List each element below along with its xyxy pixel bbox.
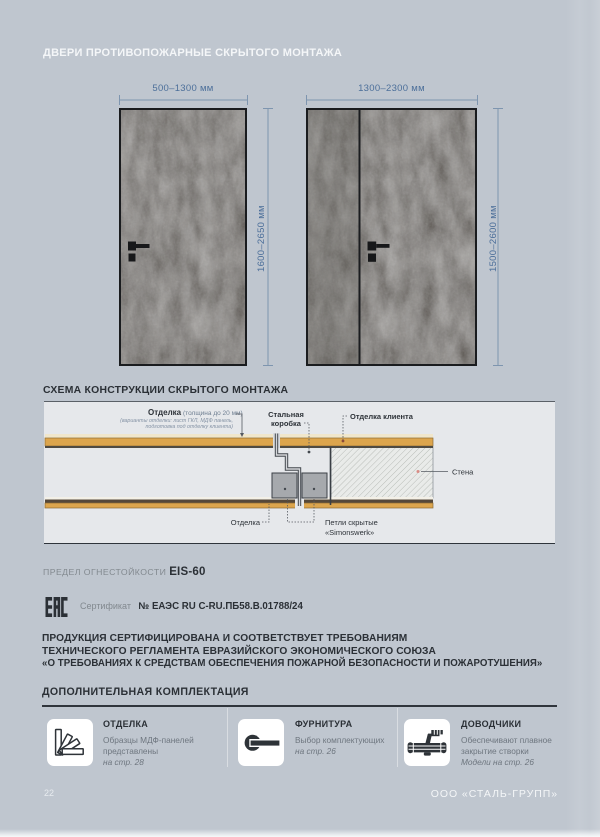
svg-text:Отделка: Отделка bbox=[231, 518, 261, 527]
svg-text:Отделка: Отделка bbox=[148, 408, 182, 417]
svg-text:Стальная: Стальная bbox=[268, 410, 304, 419]
svg-text:подготовка под отделку клиента: подготовка под отделку клиента) bbox=[146, 424, 234, 430]
svg-text:Петли скрытые: Петли скрытые bbox=[325, 518, 378, 527]
svg-text:(толщина до 20 мм): (толщина до 20 мм) bbox=[183, 410, 243, 417]
svg-text:«Simonswerk»: «Simonswerk» bbox=[325, 528, 374, 537]
svg-text:Отделка клиента: Отделка клиента bbox=[350, 412, 414, 421]
svg-text:коробка: коробка bbox=[271, 419, 302, 428]
svg-text:Стена: Стена bbox=[452, 468, 474, 477]
